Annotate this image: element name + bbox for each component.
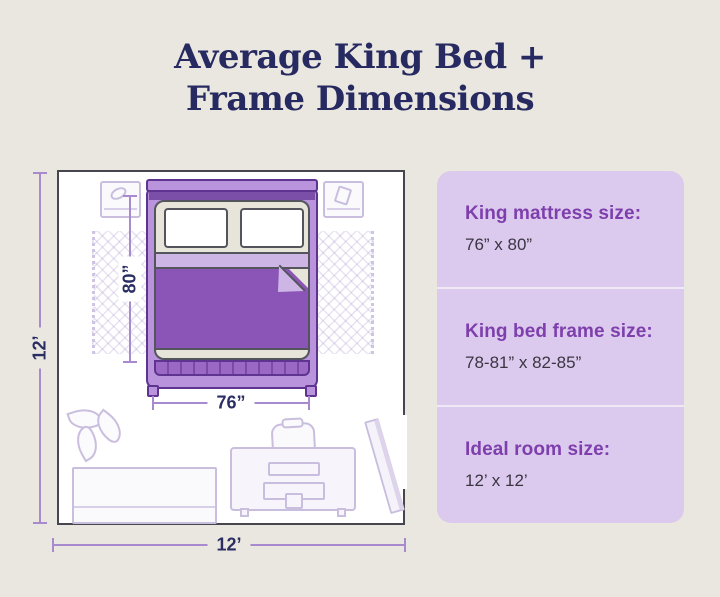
mattress-size-label: King mattress size: <box>465 203 684 225</box>
king-bed-illustration <box>146 179 318 397</box>
mattress-size-value: 76” x 80” <box>465 235 684 255</box>
leaning-mirror-illustration <box>364 418 405 514</box>
dimension-cap <box>404 538 406 552</box>
size-info-sidebar: King mattress size: 76” x 80” King bed f… <box>437 171 684 523</box>
mattress-size-panel: King mattress size: 76” x 80” <box>437 171 684 287</box>
room-size-value: 12’ x 12’ <box>465 471 684 491</box>
room-height-dimension: 12’ <box>31 172 49 524</box>
desk-drawer-knob <box>285 493 303 509</box>
dimension-cap <box>152 396 154 410</box>
frame-size-label: King bed frame size: <box>465 321 684 343</box>
room-floor-plan: 80” 76” <box>57 170 405 525</box>
dimension-cap <box>308 396 310 410</box>
room-size-label: Ideal room size: <box>465 439 684 461</box>
pillow-right <box>240 208 304 248</box>
frame-size-value: 78-81” x 82-85” <box>465 353 684 373</box>
pillow-left <box>164 208 228 248</box>
dresser-illustration <box>72 467 217 524</box>
dimension-cap <box>123 195 137 197</box>
desk-illustration <box>230 447 356 511</box>
door-opening <box>401 415 407 489</box>
room-size-panel: Ideal room size: 12’ x 12’ <box>437 405 684 523</box>
nightstand-right-illustration <box>323 181 364 218</box>
dimension-cap <box>52 538 54 552</box>
infographic-canvas: Average King Bed + Frame Dimensions 12’ <box>0 0 720 597</box>
dimension-cap <box>123 361 137 363</box>
bed-width-label: 76” <box>207 392 254 415</box>
headboard <box>146 179 318 192</box>
bed-length-dimension: 80” <box>121 195 139 363</box>
plant-illustration <box>67 404 129 464</box>
dimension-cap <box>33 522 47 524</box>
room-height-label: 12’ <box>29 327 52 368</box>
dimension-cap <box>33 172 47 174</box>
chair-headrest <box>281 417 303 428</box>
bed-width-dimension: 76” <box>152 394 310 412</box>
room-width-label: 12’ <box>207 534 250 557</box>
frame-size-panel: King bed frame size: 78-81” x 82-85” <box>437 287 684 405</box>
page-title-line2: Frame Dimensions <box>186 79 534 119</box>
desk-leg <box>337 508 346 517</box>
page-title: Average King Bed + Frame Dimensions <box>0 36 720 120</box>
desk-leg <box>240 508 249 517</box>
headboard-shadow <box>149 192 315 200</box>
page-title-line1: Average King Bed + <box>174 37 546 77</box>
bed-length-label: 80” <box>119 256 142 301</box>
decor-book-icon <box>334 185 353 205</box>
room-width-dimension: 12’ <box>52 536 406 554</box>
footboard-bench <box>154 360 310 376</box>
folded-sheet <box>154 252 310 269</box>
desk-drawer <box>268 462 320 476</box>
